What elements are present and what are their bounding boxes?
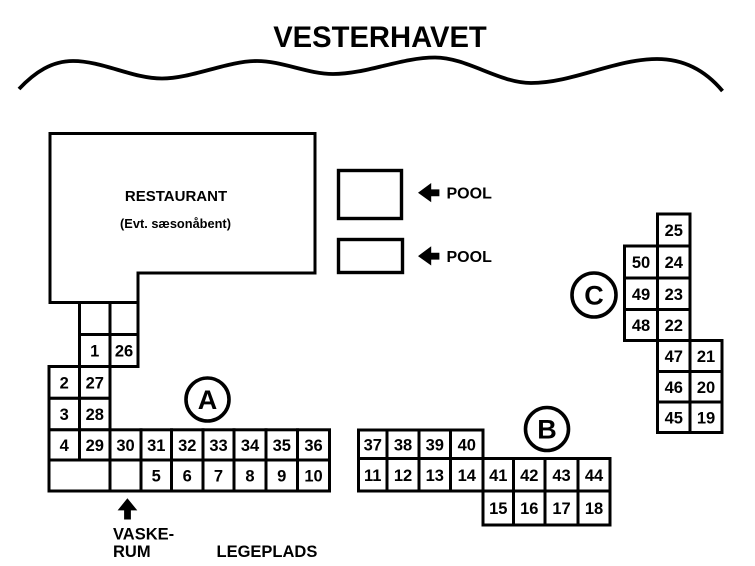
svg-text:POOL: POOL (447, 249, 493, 266)
svg-text:29: 29 (86, 437, 104, 455)
svg-text:8: 8 (245, 468, 254, 486)
svg-text:49: 49 (632, 286, 650, 304)
svg-text:VESTERHAVET: VESTERHAVET (273, 22, 487, 54)
svg-text:15: 15 (489, 500, 507, 518)
svg-text:17: 17 (552, 500, 570, 518)
svg-text:VASKE-: VASKE- (113, 526, 174, 544)
svg-text:40: 40 (458, 436, 476, 454)
svg-text:4: 4 (60, 437, 70, 455)
svg-text:36: 36 (304, 437, 322, 455)
svg-text:1: 1 (90, 343, 99, 361)
svg-text:18: 18 (585, 500, 603, 518)
svg-text:24: 24 (665, 254, 684, 272)
svg-text:6: 6 (183, 468, 192, 486)
svg-text:13: 13 (426, 467, 444, 485)
svg-text:POOL: POOL (447, 186, 493, 203)
svg-text:23: 23 (665, 286, 683, 304)
svg-text:44: 44 (585, 467, 604, 485)
svg-text:16: 16 (520, 500, 538, 518)
svg-text:30: 30 (116, 437, 134, 455)
svg-text:RUM: RUM (113, 543, 151, 561)
svg-text:21: 21 (697, 348, 715, 366)
svg-text:12: 12 (394, 467, 412, 485)
svg-text:43: 43 (552, 467, 570, 485)
svg-text:45: 45 (665, 409, 683, 427)
svg-text:14: 14 (458, 467, 477, 485)
svg-text:32: 32 (178, 437, 196, 455)
svg-text:LEGEPLADS: LEGEPLADS (217, 543, 318, 561)
svg-text:48: 48 (632, 317, 650, 335)
svg-text:9: 9 (277, 468, 286, 486)
svg-text:B: B (537, 415, 557, 445)
svg-text:20: 20 (697, 379, 715, 397)
svg-text:25: 25 (665, 222, 683, 240)
svg-text:46: 46 (665, 379, 683, 397)
svg-text:35: 35 (273, 437, 291, 455)
svg-text:47: 47 (665, 348, 683, 366)
svg-text:11: 11 (364, 467, 381, 485)
svg-text:5: 5 (152, 468, 161, 486)
svg-text:41: 41 (489, 467, 507, 485)
svg-text:2: 2 (60, 374, 69, 392)
svg-text:C: C (584, 281, 604, 311)
svg-text:34: 34 (241, 437, 260, 455)
svg-text:10: 10 (304, 468, 322, 486)
svg-text:19: 19 (697, 409, 715, 427)
svg-text:27: 27 (86, 374, 104, 392)
svg-text:33: 33 (209, 437, 227, 455)
svg-text:37: 37 (364, 436, 382, 454)
svg-text:31: 31 (147, 437, 165, 455)
svg-text:(Evt. sæsonåbent): (Evt. sæsonåbent) (120, 216, 231, 231)
svg-text:39: 39 (426, 436, 444, 454)
svg-text:RESTAURANT: RESTAURANT (125, 188, 227, 205)
svg-text:26: 26 (115, 343, 133, 361)
svg-text:A: A (198, 385, 218, 415)
svg-text:28: 28 (86, 406, 104, 424)
svg-text:42: 42 (520, 467, 538, 485)
svg-text:3: 3 (60, 406, 69, 424)
svg-text:50: 50 (632, 254, 650, 272)
svg-text:7: 7 (214, 468, 223, 486)
svg-text:38: 38 (394, 436, 412, 454)
svg-text:22: 22 (665, 317, 683, 335)
